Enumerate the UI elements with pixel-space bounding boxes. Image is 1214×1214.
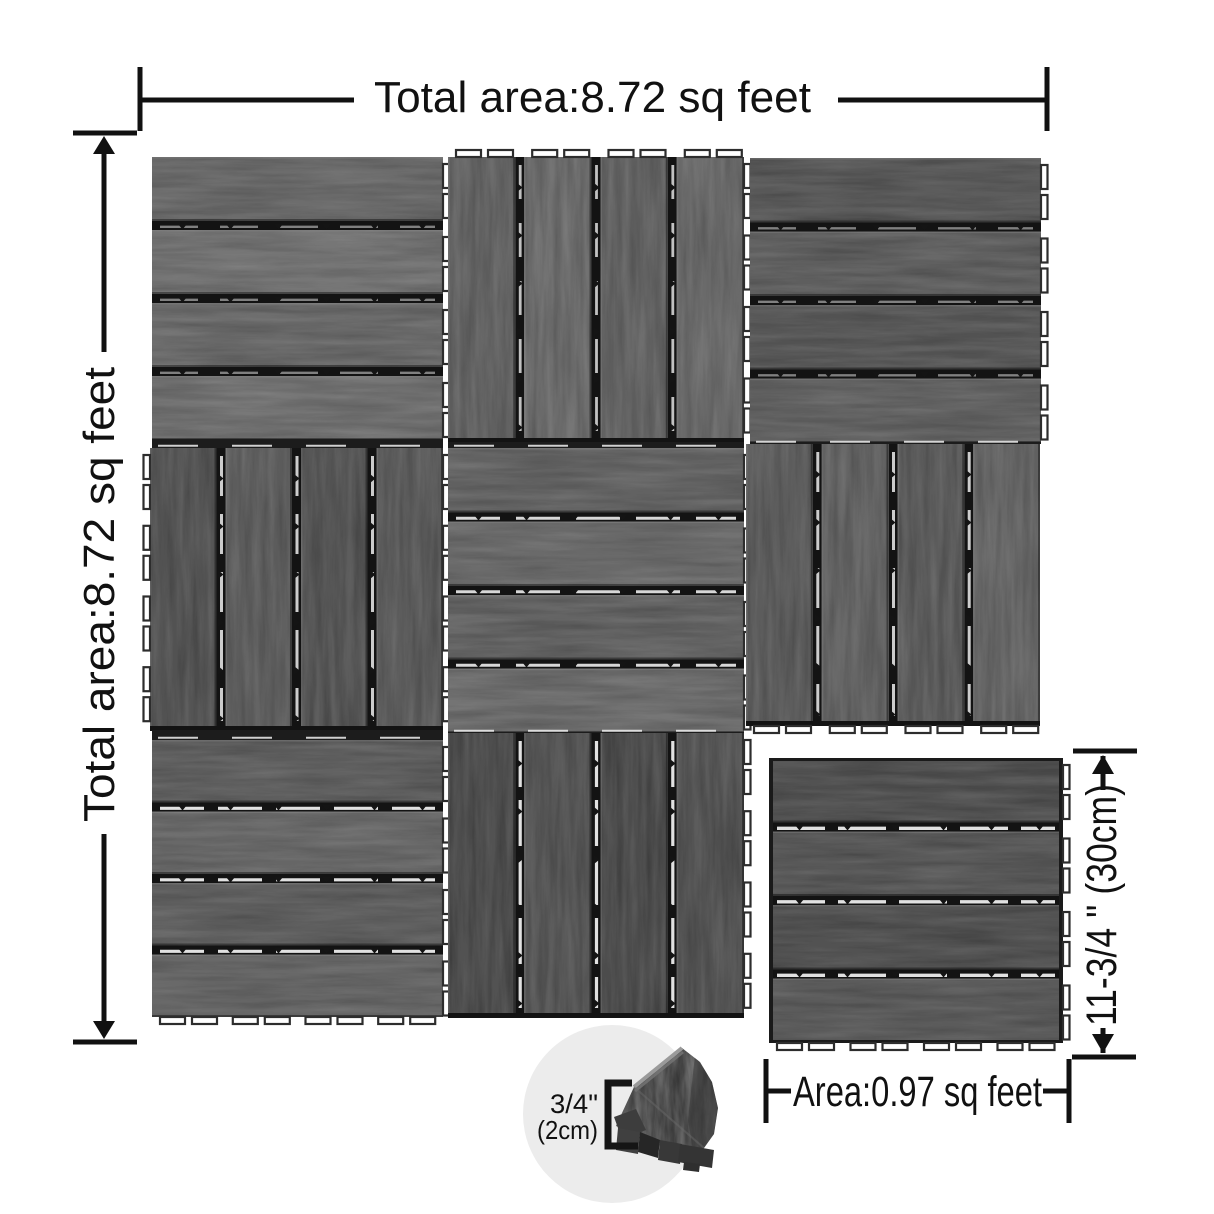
svg-text:Total area:8.72 sq feet: Total area:8.72 sq feet: [374, 73, 811, 122]
svg-text:Total area:8.72 sq feet: Total area:8.72 sq feet: [75, 367, 124, 822]
svg-text:11-3/4 '' (30cm): 11-3/4 '' (30cm): [1078, 784, 1126, 1026]
svg-text:Area:0.97 sq feet: Area:0.97 sq feet: [793, 1068, 1042, 1116]
svg-text:(2cm): (2cm): [537, 1115, 598, 1145]
